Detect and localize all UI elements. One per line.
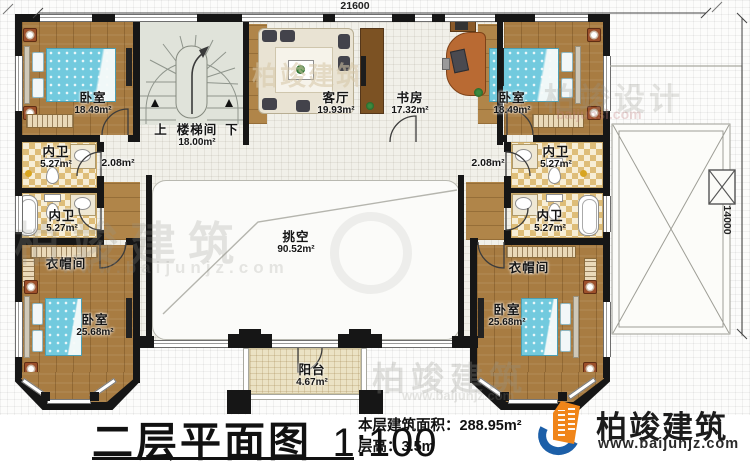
floor-height-line: 层高：3.5m (358, 437, 522, 458)
stair-up-marker (151, 99, 159, 107)
room-label-bedroom-top-right: 卧室18.49m² (493, 92, 530, 116)
brand-website: www.baijunjz.com (598, 436, 739, 452)
floor-plan-sheet: 21600 14000 卧室18.49m² 上 下 楼梯间18.00m² 客厅1… (0, 0, 750, 466)
corridor-left-area: 2.08m² (101, 158, 134, 169)
room-label-bedroom-bottom-right: 卧室25.68m² (488, 304, 525, 328)
logo-windows (568, 408, 575, 430)
room-label-stairwell: 楼梯间18.00m² (177, 124, 218, 148)
stair-down-marker (225, 99, 233, 107)
room-label-bath-left-upper: 内卫5.27m² (40, 146, 72, 170)
watermark-logo-ghost (330, 212, 412, 294)
room-label-bedroom-top-left: 卧室18.49m² (74, 92, 111, 116)
plan-stats: 本层建筑面积：288.95m² 层高：3.5m (358, 416, 522, 458)
room-label-closet-left: 衣帽间 (46, 258, 87, 271)
dimension-right: 14000 (721, 195, 733, 245)
room-label-balcony: 阳台4.67m² (296, 364, 328, 388)
room-label-bath-right-upper: 内卫5.27m² (540, 146, 572, 170)
stair-up-label: 上 (154, 124, 168, 137)
corridor-right-area: 2.08m² (471, 158, 504, 169)
roof-plan (612, 124, 730, 334)
room-label-bath-left-lower: 内卫5.27m² (46, 210, 78, 234)
dimension-top: 21600 (320, 0, 390, 12)
room-label-living: 客厅19.93m² (317, 92, 354, 116)
room-label-study: 书房17.32m² (391, 92, 428, 116)
room-label-bedroom-bottom-left: 卧室25.68m² (76, 314, 113, 338)
room-label-void: 挑空90.52m² (277, 231, 314, 255)
title-underline (92, 457, 354, 460)
logo-windows (558, 410, 565, 436)
floor-area-line: 本层建筑面积：288.95m² (358, 416, 522, 437)
room-label-bath-right-lower: 内卫5.27m² (534, 210, 566, 234)
room-label-closet-right: 衣帽间 (509, 262, 550, 275)
brand-logo-icon (538, 400, 594, 462)
stair-down-label: 下 (225, 124, 239, 137)
